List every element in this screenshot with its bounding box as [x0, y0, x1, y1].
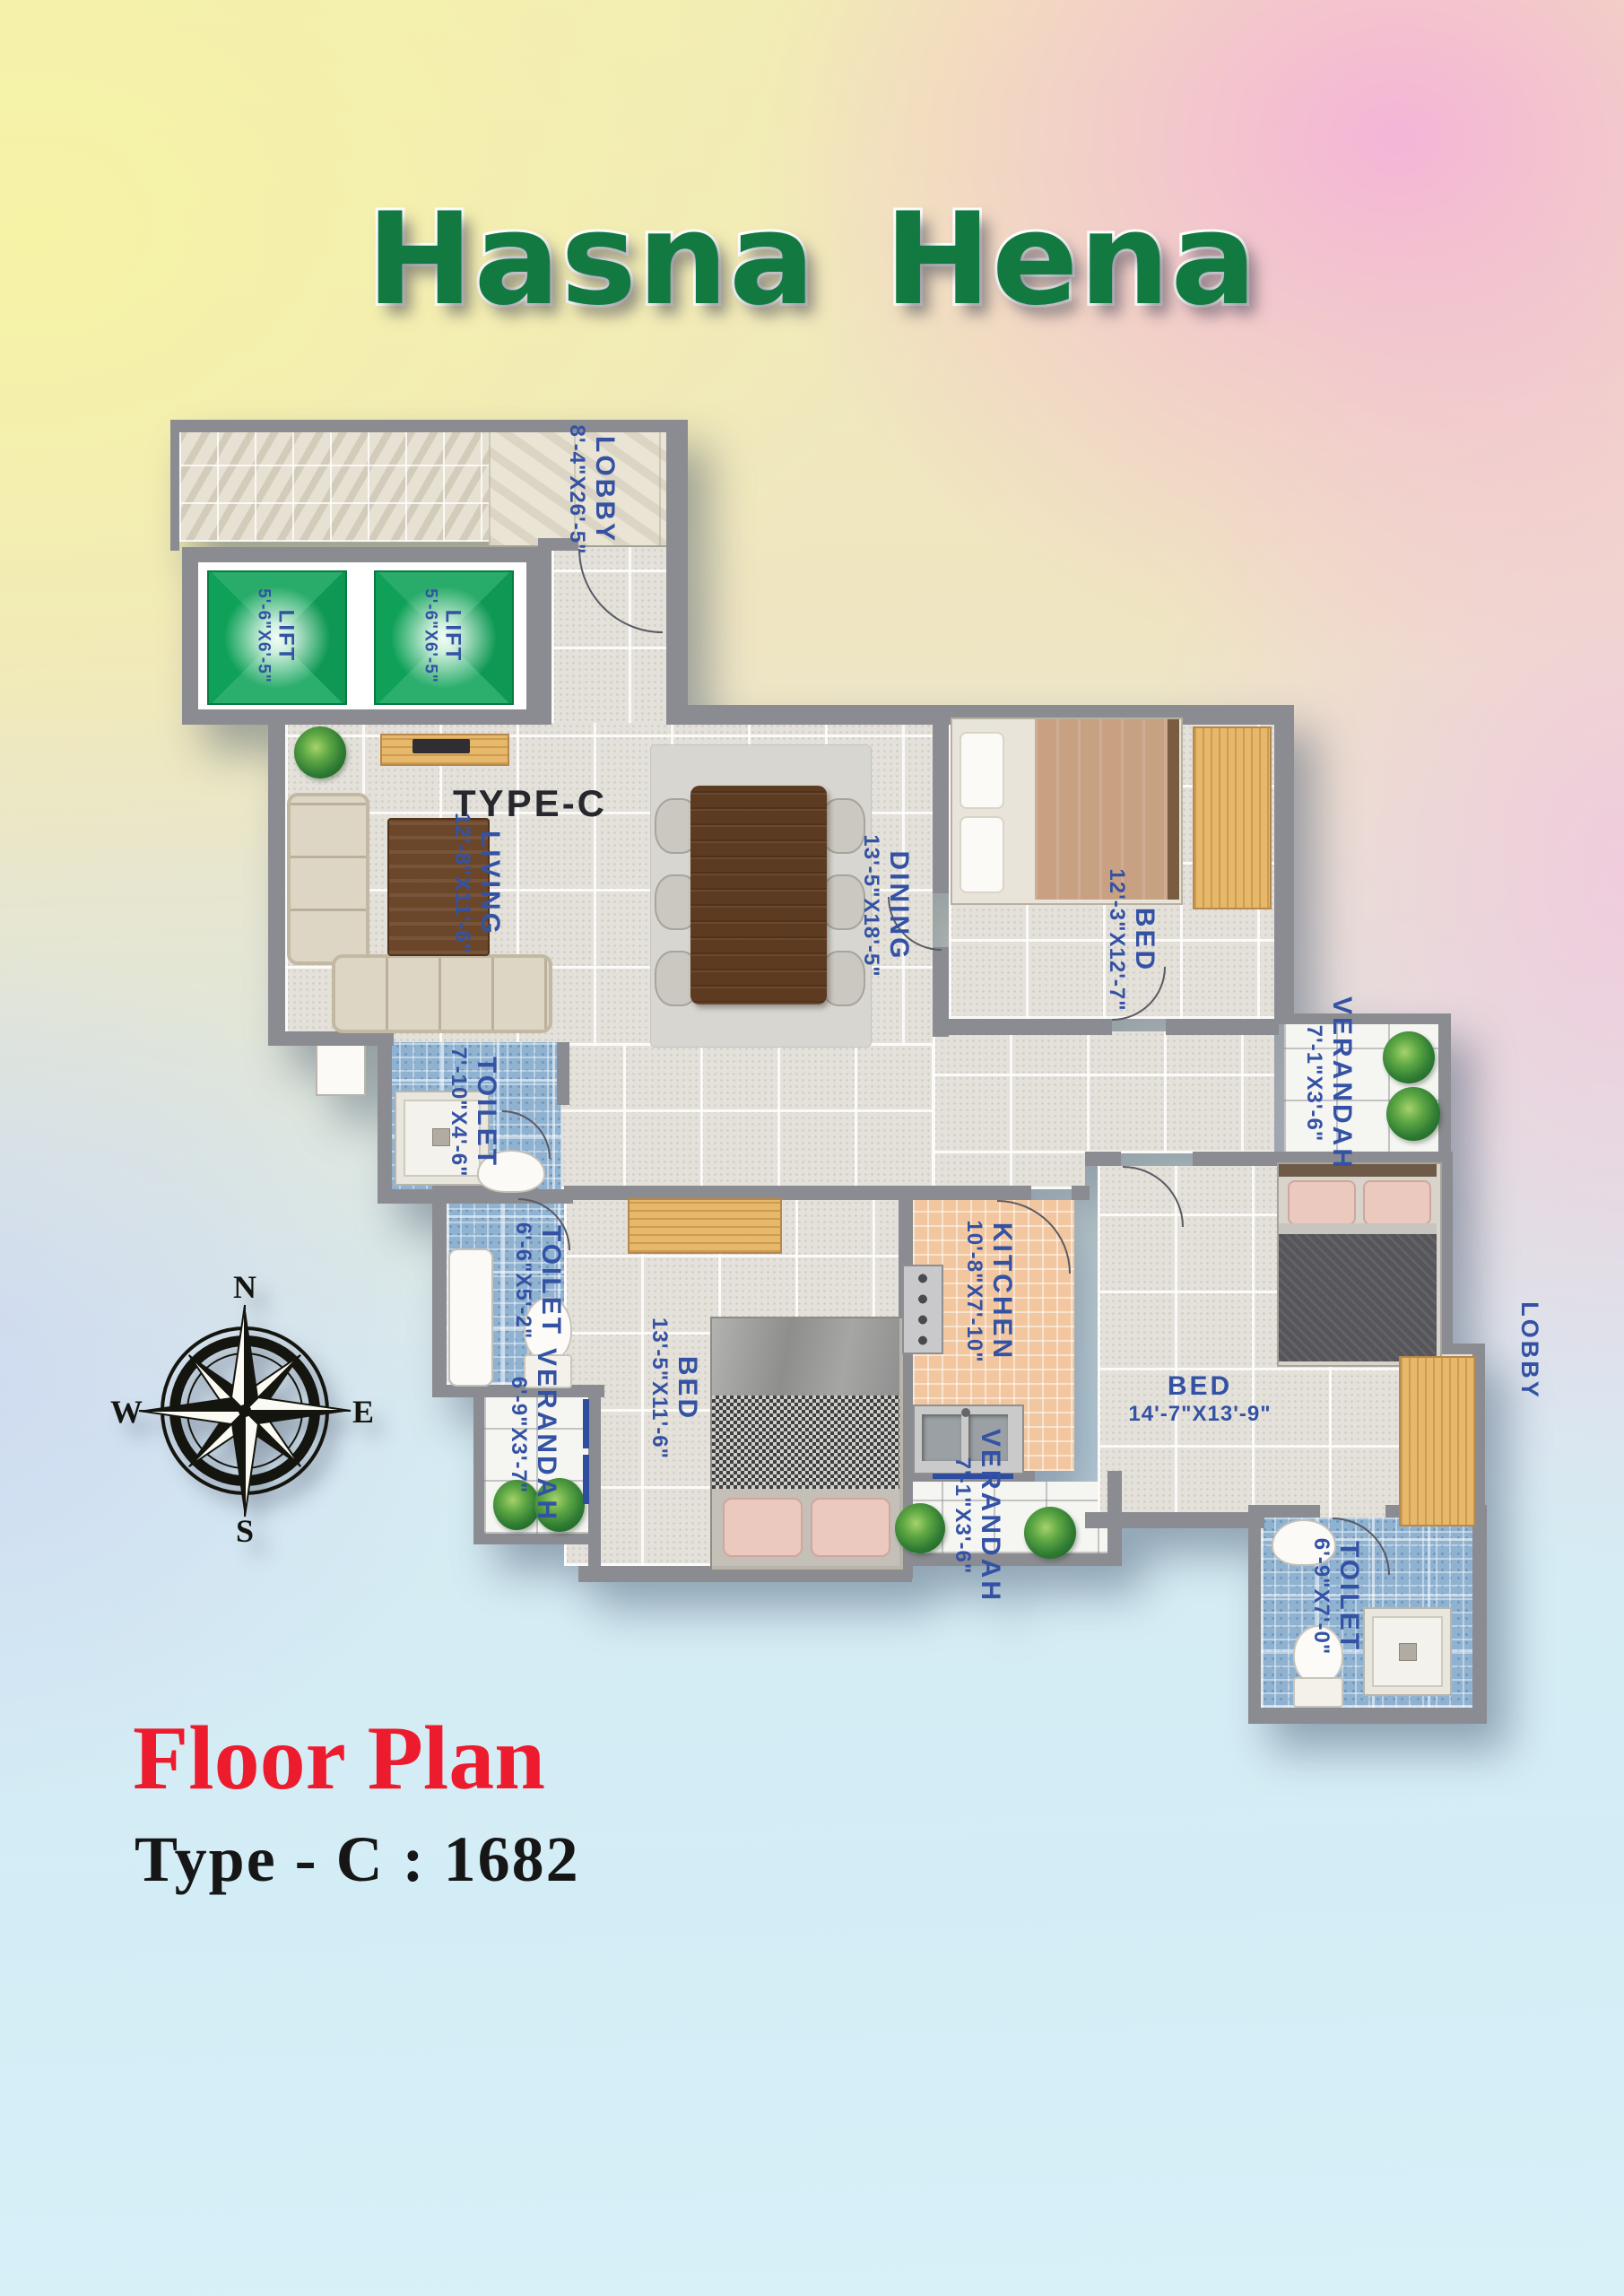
wall [557, 1042, 569, 1105]
bed3-blanket [1279, 1234, 1437, 1361]
toilet3-tank [1293, 1677, 1343, 1708]
shower-drain [1399, 1643, 1417, 1661]
sofa-left [287, 793, 369, 965]
plant-verandah1 [1386, 1087, 1440, 1141]
tv-screen [413, 739, 470, 753]
wall [432, 1186, 447, 1397]
room-label-dining: DINING 13'-5"X18'-5" [857, 834, 915, 977]
room-label-kitchen: KITCHEN 10'-8"X7'-10" [960, 1220, 1018, 1362]
wall [1274, 705, 1294, 1024]
wall [588, 1397, 601, 1577]
wall [933, 705, 949, 893]
hall-right-floor2 [933, 1153, 1085, 1189]
bed3 [1277, 1162, 1442, 1367]
bed2-pillow [811, 1498, 890, 1557]
room-label-toilet3: TOILET 6'-9"X7'-0" [1307, 1538, 1365, 1656]
stove [902, 1265, 943, 1354]
bathtub-toilet2 [448, 1248, 493, 1387]
dining-table [690, 786, 827, 1004]
wall [1248, 1505, 1320, 1518]
plant-verandah1 [1383, 1031, 1435, 1083]
bed1-headboard [1168, 719, 1179, 900]
wall [1085, 1152, 1121, 1166]
room-label-bed3: BED 14'-7"X13'-9" [1128, 1370, 1271, 1428]
plant-verandah3 [1024, 1507, 1076, 1559]
room-label-bed1: BED 12'-3"X12'-7" [1103, 868, 1160, 1011]
wall [170, 420, 179, 551]
wall [473, 1385, 484, 1544]
wall [378, 1031, 392, 1204]
window [583, 1455, 589, 1504]
faucet [961, 1408, 970, 1417]
wardrobe-bed3 [1399, 1356, 1476, 1526]
lobby-right-label: LOBBY [1515, 1301, 1543, 1400]
compass-rose-icon: N E S W [110, 1276, 379, 1545]
bed2-blanket [712, 1396, 899, 1489]
toilet1-closet [316, 1042, 366, 1096]
bed3-pillow [1363, 1180, 1431, 1225]
room-label-verandah3: VERANDAH 7'-1"X3'-6" [949, 1429, 1006, 1603]
room-label-toilet1: TOILET 7'-10"X4'-6" [445, 1048, 502, 1178]
compass-south-label: S [236, 1513, 254, 1545]
room-label-toilet2: TOILET 6'-6"X5'-2" [509, 1222, 567, 1340]
type-area-heading: Type - C : 1682 [135, 1822, 580, 1897]
wall [666, 420, 688, 725]
wall [1472, 1505, 1487, 1724]
bed3-pillow [1288, 1180, 1356, 1225]
room-label-lift-right: LIFT 5'-6"X6'-5" [420, 588, 465, 683]
lobby-stair-strip-floor [179, 432, 489, 542]
floor-plan: TYPE-C LOBBY 8'-4"X26'-5" LIFT 5'-6"X6'-… [0, 0, 1624, 2296]
room-label-verandah2: VERANDAH 6'-9"X3'-7" [505, 1348, 562, 1522]
wall [1072, 1186, 1090, 1200]
poster-page: Hasna Hena [0, 0, 1624, 2296]
wall [1438, 1013, 1451, 1164]
bed2-pillow [723, 1498, 803, 1557]
room-label-bed2: BED 13'-5"X11'-6" [646, 1318, 703, 1459]
compass-north-label: N [233, 1276, 256, 1305]
floor-plan-heading: Floor Plan [133, 1706, 545, 1811]
bed1-pillow [960, 816, 1004, 893]
room-label-lift-left: LIFT 5'-6"X6'-5" [253, 588, 299, 683]
wardrobe-bed1 [1193, 726, 1272, 909]
room-label-lobby-top: LOBBY 8'-4"X26'-5" [563, 425, 621, 555]
wall [933, 1019, 1112, 1035]
hall-right-floor [933, 1031, 1274, 1153]
wall [1248, 1708, 1487, 1724]
compass-west-label: W [110, 1394, 143, 1430]
bed2 [710, 1317, 905, 1571]
wall [1166, 1019, 1279, 1035]
wall [268, 1031, 394, 1046]
bed1-pillow [960, 732, 1004, 809]
room-label-verandah1: VERANDAH 7'-1"X3'-6" [1300, 996, 1358, 1170]
sofa-bottom [332, 954, 552, 1033]
plant-verandah3 [895, 1503, 945, 1553]
plant-living [294, 726, 346, 778]
compass-east-label: E [352, 1394, 374, 1430]
bed2-drape [712, 1318, 899, 1396]
wardrobe-bed2 [628, 1198, 782, 1254]
wall [268, 723, 285, 1046]
bed3-fold [1279, 1223, 1437, 1234]
wall [1085, 1512, 1264, 1528]
room-label-living: LIVING 12'-8"X11'-6" [448, 813, 506, 954]
window [583, 1399, 589, 1448]
wall [473, 1534, 594, 1544]
wall [1248, 1505, 1261, 1724]
